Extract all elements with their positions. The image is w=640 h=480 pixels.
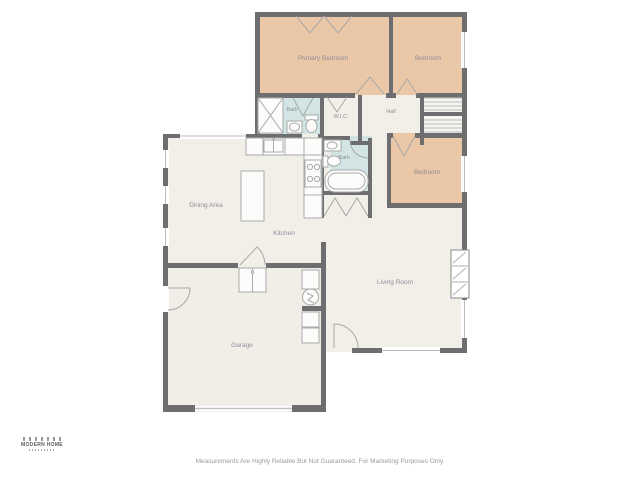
room-label-bath-middle: Bath xyxy=(338,155,349,161)
toilet-icon xyxy=(305,115,318,133)
fireplace-icon xyxy=(451,250,469,298)
logo-name: MODERN HOME xyxy=(16,442,68,448)
room-label-primary-bedroom: Primary Bedroom xyxy=(298,55,349,62)
stove-icon xyxy=(305,160,321,187)
shower-icon xyxy=(258,98,283,133)
room-label-dining: Dining Area xyxy=(189,202,223,209)
room-label-garage: Garage xyxy=(231,342,253,349)
room-label-bedroom-top: Bedroom xyxy=(415,55,441,62)
logo-decor-bottom xyxy=(29,449,55,451)
kitchen-sink-icon xyxy=(264,139,283,153)
disclaimer-text: Measurements Are Highly Reliable But Not… xyxy=(0,458,640,465)
room-label-wic: W.I.C. xyxy=(334,114,349,120)
water-heater-icon xyxy=(303,289,319,305)
floor-plan-page: Primary Bedroom Bedroom Bath W.I.C. Hall… xyxy=(0,0,640,480)
room-label-kitchen: Kitchen xyxy=(273,230,295,237)
floor-plan: Primary Bedroom Bedroom Bath W.I.C. Hall… xyxy=(0,0,640,480)
room-label-living: Living Room xyxy=(377,279,413,286)
room-label-hall: Hall xyxy=(386,109,395,115)
kitchen-island xyxy=(241,171,264,221)
company-logo: MODERN HOME xyxy=(16,437,68,451)
room-label-bedroom-right: Bedroom xyxy=(414,169,440,176)
logo-decor-top xyxy=(23,437,61,441)
room-label-bath-upper: Bath xyxy=(286,107,297,113)
sink-icon xyxy=(287,121,302,133)
